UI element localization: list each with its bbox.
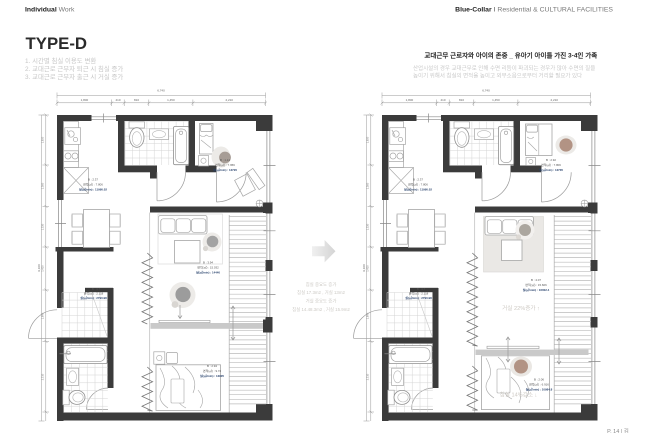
- svg-text:실(㎡/min) : 12905: 실(㎡/min) : 12905: [200, 373, 224, 378]
- svg-text:높이기 위해서 침실의 면적을 높이고 외부소음으로부터 거: 높이기 위해서 침실의 면적을 높이고 외부소음으로부터 거리할 필요가 있다: [413, 72, 582, 80]
- svg-text:면적(㎡) : 15.032: 면적(㎡) : 15.032: [197, 264, 219, 269]
- svg-text:TYPE-D: TYPE-D: [26, 34, 88, 53]
- svg-text:면적(㎡) : 6.916: 면적(㎡) : 6.916: [529, 382, 549, 387]
- svg-text:실(㎡/min) : 14440: 실(㎡/min) : 14440: [196, 269, 220, 274]
- svg-text:Blue-Collar I Residential & CU: Blue-Collar I Residential & CULTURAL FAC…: [455, 7, 613, 14]
- svg-text:실(㎡/min) : 10984.8: 실(㎡/min) : 10984.8: [526, 387, 553, 392]
- svg-text:침실 17.3m2 , 거실 13m2: 침실 17.3m2 , 거실 13m2: [297, 289, 345, 296]
- svg-text:면적(㎡) : 15.606: 면적(㎡) : 15.606: [525, 282, 547, 287]
- svg-text:침실 14%감소 ↓: 침실 14%감소 ↓: [500, 391, 538, 399]
- svg-text:침실 중요도 증가: 침실 중요도 증가: [306, 281, 337, 288]
- svg-text:면적(㎡) : 7.806: 면적(㎡) : 7.806: [541, 162, 561, 167]
- svg-text:거실 중요도 증가: 거실 중요도 증가: [306, 297, 337, 304]
- svg-text:B : 2.92: B : 2.92: [546, 158, 556, 162]
- svg-text:B : 3.94: B : 3.94: [203, 260, 213, 264]
- svg-text:산업시설의 경우 교대근무로 인해 수면 리듬이 파괴되는: 산업시설의 경우 교대근무로 인해 수면 리듬이 파괴되는 경우가 많아 수면의…: [413, 64, 595, 72]
- svg-text:실(㎡/min) : 12720: 실(㎡/min) : 12720: [213, 167, 237, 172]
- svg-text:침실 14.48.3m2 , 거실 15.9m2: 침실 14.48.3m2 , 거실 15.9m2: [292, 306, 350, 313]
- svg-text:교대근무 근로자와 아이의 존중 _ 유아기 아이를 가진: 교대근무 근로자와 아이의 존중 _ 유아기 아이를 가진 3-4인 가족: [424, 51, 597, 60]
- svg-text:B : 2.06: B : 2.06: [534, 378, 544, 382]
- svg-text:실(㎡/min) : 12735: 실(㎡/min) : 12735: [539, 167, 563, 172]
- svg-text:면적(㎡) : 9.72: 면적(㎡) : 9.72: [203, 368, 222, 373]
- svg-text:B : 1.14: B : 1.14: [220, 158, 230, 162]
- svg-text:B : 2.94: B : 2.94: [207, 364, 217, 368]
- svg-text:2. 교대근로 근무자 퇴근 시 침실 증가: 2. 교대근로 근무자 퇴근 시 침실 증가: [25, 64, 123, 73]
- svg-text:P. 14 | 김: P. 14 | 김: [607, 428, 629, 433]
- svg-text:거실 22%증가 ↑: 거실 22%증가 ↑: [502, 304, 540, 312]
- svg-text:3. 교대근로 근무자 출근 시 거실 증가: 3. 교대근로 근무자 출근 시 거실 증가: [25, 72, 123, 81]
- svg-text:B : 4.07: B : 4.07: [531, 278, 541, 282]
- svg-text:실(㎡/min) : 16002.4: 실(㎡/min) : 16002.4: [523, 287, 550, 292]
- svg-text:Individual Work: Individual Work: [25, 7, 75, 14]
- svg-text:면적(㎡) : 7.956: 면적(㎡) : 7.956: [215, 162, 235, 167]
- svg-text:1. 시간별 침실 이용도 변환: 1. 시간별 침실 이용도 변환: [25, 56, 96, 65]
